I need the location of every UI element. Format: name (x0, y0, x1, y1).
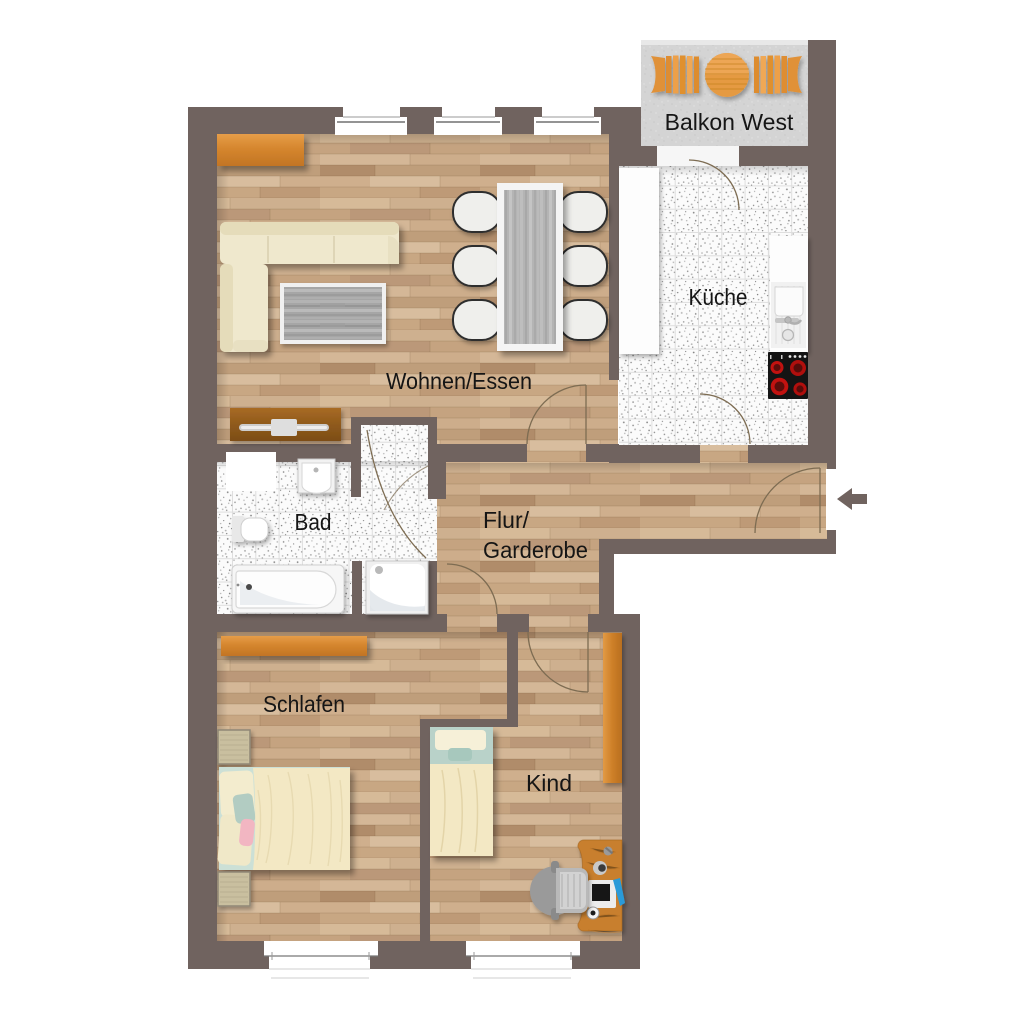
svg-text:Bad: Bad (295, 509, 332, 535)
svg-text:Wohnen/Essen: Wohnen/Essen (386, 368, 532, 394)
svg-text:Kind: Kind (526, 770, 572, 796)
svg-text:Garderobe: Garderobe (483, 537, 588, 563)
svg-text:Flur/: Flur/ (483, 507, 530, 533)
svg-text:Schlafen: Schlafen (263, 691, 345, 717)
svg-text:Balkon West: Balkon West (665, 109, 794, 135)
svg-text:Küche: Küche (689, 284, 748, 310)
